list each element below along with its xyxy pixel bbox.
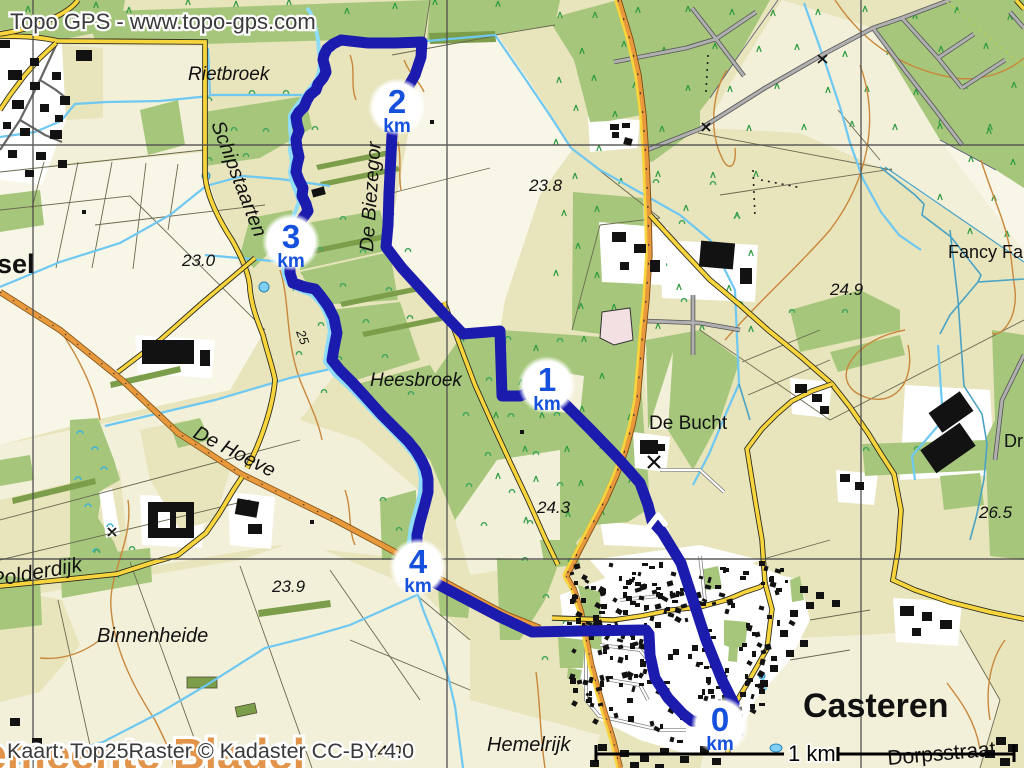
svg-text:Fancy Farm: Fancy Farm (948, 242, 1024, 262)
svg-text:Topo GPS - www.topo-gps.com: Topo GPS - www.topo-gps.com (10, 9, 316, 34)
svg-text:23.8: 23.8 (528, 176, 563, 195)
svg-text:km: km (277, 251, 304, 272)
svg-text:sel: sel (0, 249, 35, 279)
svg-text:1: 1 (538, 361, 556, 398)
svg-text:1 km: 1 km (788, 741, 836, 766)
svg-text:Dr: Dr (1004, 431, 1023, 451)
svg-text:23.9: 23.9 (271, 577, 306, 596)
svg-text:Rietbroek: Rietbroek (188, 64, 271, 85)
svg-text:Binnenheide: Binnenheide (97, 625, 208, 647)
svg-text:Casteren: Casteren (803, 687, 949, 725)
svg-text:3: 3 (282, 218, 300, 255)
svg-text:De Bucht: De Bucht (649, 413, 728, 434)
svg-text:km: km (533, 394, 560, 415)
svg-text:Heesbroek: Heesbroek (370, 370, 463, 391)
svg-text:Kaart: Top25Raster © Kadaster: Kaart: Top25Raster © Kadaster CC-BY 4.0 (7, 739, 414, 763)
svg-text:24.9: 24.9 (829, 280, 864, 299)
svg-text:km: km (706, 734, 733, 755)
svg-text:4: 4 (409, 543, 428, 580)
svg-text:0: 0 (711, 701, 729, 738)
svg-text:23.0: 23.0 (181, 251, 216, 270)
svg-text:24.3: 24.3 (536, 498, 571, 517)
svg-text:26.5: 26.5 (978, 503, 1013, 522)
svg-text:km: km (404, 576, 431, 597)
svg-text:2: 2 (388, 83, 406, 120)
svg-text:Hemelrijk: Hemelrijk (487, 734, 571, 756)
svg-text:km: km (383, 116, 410, 137)
